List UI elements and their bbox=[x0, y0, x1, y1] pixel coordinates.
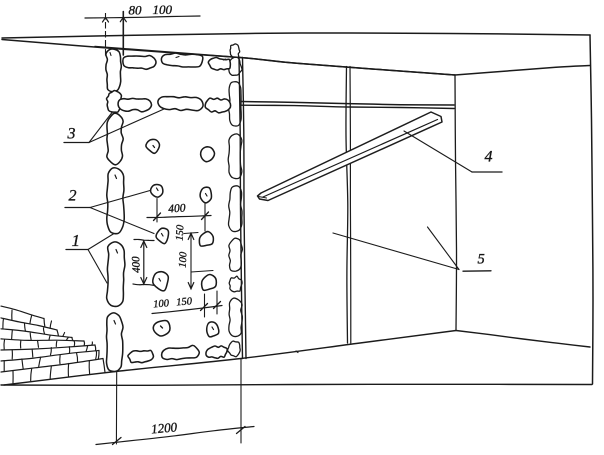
svg-text:1200: 1200 bbox=[150, 419, 178, 436]
svg-text:100: 100 bbox=[153, 2, 173, 17]
svg-text:3: 3 bbox=[67, 126, 76, 143]
svg-text:1: 1 bbox=[72, 231, 81, 250]
svg-text:100: 100 bbox=[177, 251, 189, 268]
svg-text:5: 5 bbox=[478, 252, 485, 268]
svg-text:400: 400 bbox=[168, 202, 186, 215]
svg-text:80: 80 bbox=[129, 3, 143, 18]
svg-text:400: 400 bbox=[130, 256, 143, 274]
svg-text:150: 150 bbox=[176, 296, 193, 308]
svg-text:2: 2 bbox=[69, 188, 77, 205]
svg-text:150: 150 bbox=[174, 224, 186, 241]
svg-text:100: 100 bbox=[153, 298, 170, 310]
svg-text:4: 4 bbox=[485, 149, 493, 166]
